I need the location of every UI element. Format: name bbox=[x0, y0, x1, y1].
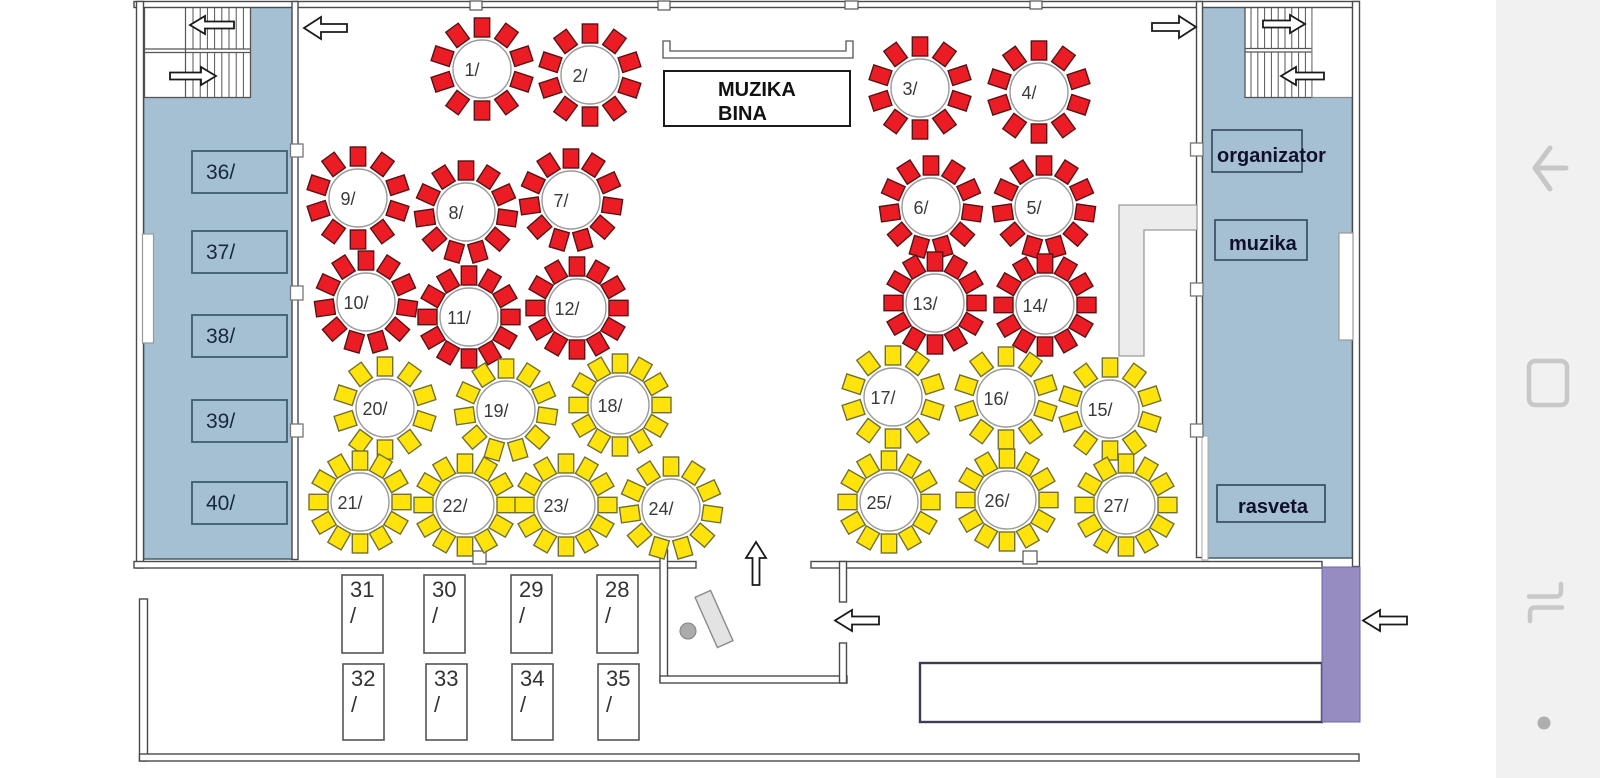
svg-text:30: 30 bbox=[432, 577, 456, 602]
svg-text:35: 35 bbox=[606, 666, 630, 691]
svg-text:/: / bbox=[351, 692, 358, 717]
svg-text:/: / bbox=[350, 603, 357, 628]
svg-text:32: 32 bbox=[351, 666, 375, 691]
svg-text:10/: 10/ bbox=[343, 293, 368, 313]
svg-text:37/: 37/ bbox=[206, 241, 235, 264]
svg-text:18/: 18/ bbox=[597, 396, 622, 416]
svg-text:27/: 27/ bbox=[1103, 496, 1128, 516]
svg-text:3/: 3/ bbox=[902, 79, 917, 99]
svg-text:36/: 36/ bbox=[206, 161, 235, 184]
svg-text:40/: 40/ bbox=[206, 492, 235, 515]
svg-text:23/: 23/ bbox=[543, 496, 568, 516]
svg-text:31: 31 bbox=[350, 577, 374, 602]
svg-text:29: 29 bbox=[519, 577, 543, 602]
svg-text:16/: 16/ bbox=[983, 389, 1008, 409]
svg-text:7/: 7/ bbox=[553, 191, 568, 211]
svg-text:organizator: organizator bbox=[1217, 145, 1326, 167]
svg-text:20/: 20/ bbox=[362, 399, 387, 419]
svg-text:14/: 14/ bbox=[1022, 296, 1047, 316]
svg-text:9/: 9/ bbox=[340, 189, 355, 209]
svg-text:/: / bbox=[519, 603, 526, 628]
svg-text:4/: 4/ bbox=[1021, 83, 1036, 103]
svg-text:26/: 26/ bbox=[984, 491, 1009, 511]
svg-text:2/: 2/ bbox=[572, 66, 587, 86]
svg-text:13/: 13/ bbox=[912, 294, 937, 314]
svg-text:38/: 38/ bbox=[206, 325, 235, 348]
svg-text:11/: 11/ bbox=[447, 308, 471, 328]
svg-text:muzika: muzika bbox=[1229, 233, 1298, 255]
svg-text:8/: 8/ bbox=[448, 203, 463, 223]
svg-text:24/: 24/ bbox=[648, 499, 673, 519]
svg-text:39/: 39/ bbox=[206, 410, 235, 433]
svg-text:/: / bbox=[434, 692, 441, 717]
svg-text:MUZIKA: MUZIKA bbox=[718, 79, 796, 101]
svg-text:12/: 12/ bbox=[554, 299, 579, 319]
svg-text:22/: 22/ bbox=[442, 496, 467, 516]
svg-text:6/: 6/ bbox=[913, 198, 928, 218]
svg-text:25/: 25/ bbox=[866, 493, 891, 513]
svg-text:21/: 21/ bbox=[337, 493, 362, 513]
svg-text:15/: 15/ bbox=[1087, 400, 1112, 420]
svg-text:28: 28 bbox=[605, 577, 629, 602]
svg-text:33: 33 bbox=[434, 666, 458, 691]
svg-text:19/: 19/ bbox=[483, 401, 508, 421]
svg-text:17/: 17/ bbox=[870, 388, 895, 408]
svg-text:rasveta: rasveta bbox=[1238, 496, 1309, 518]
svg-text:/: / bbox=[520, 692, 527, 717]
svg-text:1/: 1/ bbox=[464, 60, 479, 80]
svg-text:34: 34 bbox=[520, 666, 544, 691]
svg-text:BINA: BINA bbox=[718, 103, 767, 125]
svg-text:/: / bbox=[606, 692, 613, 717]
svg-text:/: / bbox=[605, 603, 612, 628]
svg-text:5/: 5/ bbox=[1026, 198, 1041, 218]
svg-text:/: / bbox=[432, 603, 439, 628]
